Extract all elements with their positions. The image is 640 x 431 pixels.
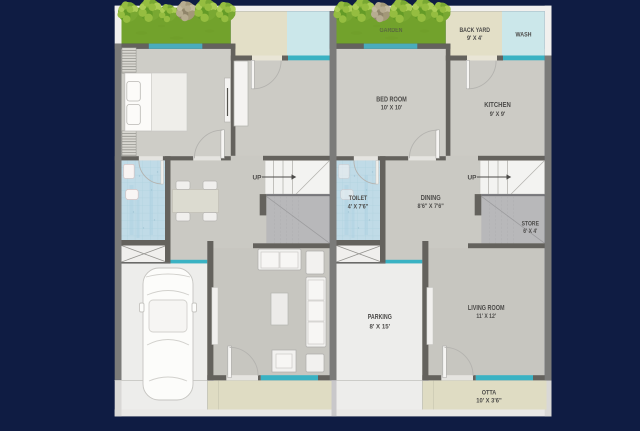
svg-text:BED ROOM: BED ROOM [376,96,407,103]
svg-text:8' X 15': 8' X 15' [370,324,391,331]
svg-text:8'6" X 7'6": 8'6" X 7'6" [418,203,444,210]
svg-text:10' X 3'6": 10' X 3'6" [476,397,502,404]
svg-text:WASH: WASH [516,32,532,39]
svg-text:11' X 12': 11' X 12' [476,313,496,320]
svg-text:STORE: STORE [522,221,540,228]
svg-text:KITCHEN: KITCHEN [484,102,511,109]
svg-text:BACK YARD: BACK YARD [459,27,490,34]
svg-text:GARDEN: GARDEN [380,28,403,34]
svg-text:4' X 7'6": 4' X 7'6" [348,203,369,210]
svg-text:UP: UP [468,175,477,182]
svg-text:PARKING: PARKING [368,314,393,321]
svg-text:9' X 4': 9' X 4' [467,35,483,42]
svg-text:DINING: DINING [421,195,441,202]
svg-text:10' X 10': 10' X 10' [381,105,403,112]
svg-text:LIVING ROOM: LIVING ROOM [468,305,505,312]
svg-text:9' X 9': 9' X 9' [490,111,506,118]
svg-text:6' X 4': 6' X 4' [523,228,537,235]
svg-text:TOILET: TOILET [349,195,368,202]
svg-text:OTTA: OTTA [482,389,497,396]
svg-text:UP: UP [253,175,262,182]
